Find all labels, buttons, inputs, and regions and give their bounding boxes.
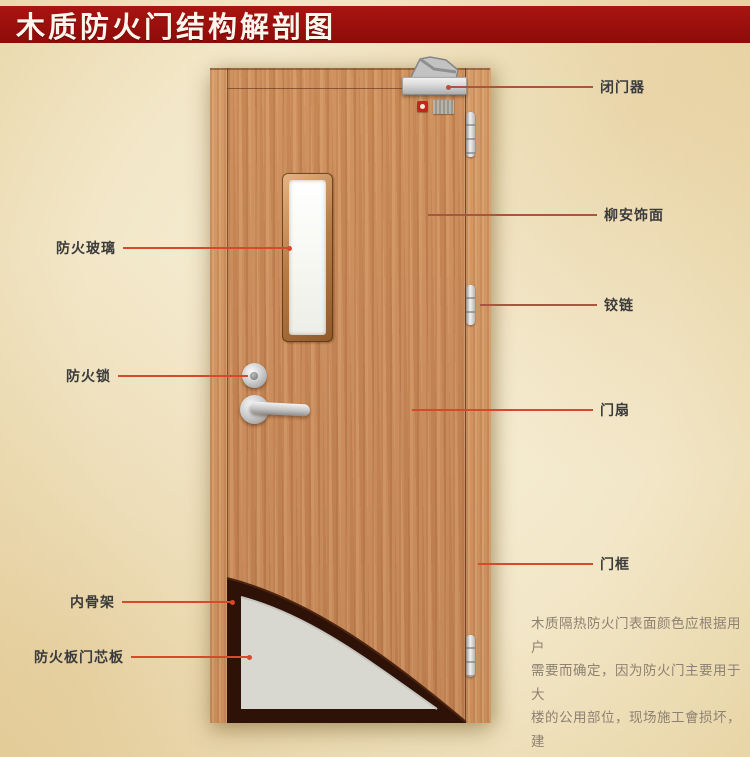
label-fire-lock: 防火锁	[66, 366, 248, 386]
leader-line-fireproof-core	[131, 656, 251, 658]
door-closer-arm	[400, 55, 470, 79]
poster: 木质防火门结构解剖图 防火玻璃	[0, 0, 750, 757]
label-hinge-text: 铰链	[604, 295, 634, 315]
title-banner: 木质防火门结构解剖图	[0, 6, 750, 43]
label-fire-lock-text: 防火锁	[66, 366, 111, 386]
label-fireproof-core: 防火板门芯板	[34, 647, 251, 667]
description-line: 楼的公用部位，现场施工會损坏，建	[531, 706, 747, 753]
hinge-middle	[466, 285, 475, 325]
page-title: 木质防火门结构解剖图	[0, 4, 336, 46]
label-inner-skeleton-text: 内骨架	[70, 592, 115, 612]
label-lauan-veneer: 柳安饰面	[428, 205, 664, 225]
leader-line-door-frame	[478, 563, 593, 565]
label-door-closer-text: 闭门器	[600, 77, 645, 97]
leader-line-fire-glass	[123, 247, 291, 249]
label-door-leaf-text: 门扇	[600, 400, 630, 420]
hinge-top	[466, 112, 475, 157]
label-door-leaf: 门扇	[412, 400, 630, 420]
leader-line-fire-lock	[118, 375, 248, 377]
leader-line-door-leaf	[412, 409, 593, 411]
label-hinge: 铰链	[480, 295, 634, 315]
label-fire-glass-text: 防火玻璃	[56, 238, 116, 258]
label-inner-skeleton: 内骨架	[70, 592, 234, 612]
description-line: 议出厂时不做油漆，待工程全面快完	[531, 753, 747, 757]
fire-door-illustration	[210, 68, 490, 723]
alarm-indicator	[417, 101, 428, 112]
label-lauan-veneer-text: 柳安饰面	[604, 205, 664, 225]
glass-pane	[289, 180, 326, 335]
metal-plate	[433, 100, 454, 114]
cutaway-section	[210, 570, 490, 723]
description-line: 需要而确定，因为防火门主要用于大	[531, 659, 747, 706]
leader-line-lauan-veneer	[428, 214, 597, 216]
label-door-frame: 门框	[478, 554, 630, 574]
label-fire-glass: 防火玻璃	[56, 238, 291, 258]
label-fireproof-core-text: 防火板门芯板	[34, 647, 124, 667]
leader-line-door-closer	[447, 86, 593, 88]
label-door-closer: 闭门器	[447, 77, 645, 97]
description-line: 木质隔热防火门表面颜色应根据用户	[531, 612, 747, 659]
label-door-frame-text: 门框	[600, 554, 630, 574]
leader-line-hinge	[480, 304, 597, 306]
description-paragraph: 木质隔热防火门表面颜色应根据用户 需要而确定，因为防火门主要用于大 楼的公用部位…	[531, 612, 747, 757]
leader-line-inner-skeleton	[122, 601, 234, 603]
